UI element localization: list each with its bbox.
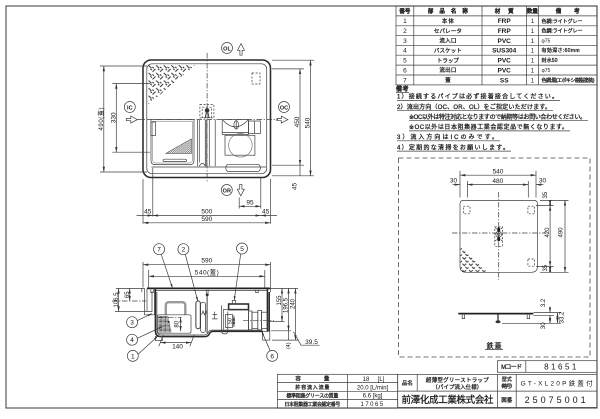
svg-text:45: 45 [144,209,152,216]
svg-text:図番: 図番 [501,397,512,404]
svg-text:PVC: PVC [498,38,512,45]
svg-text:5: 5 [403,58,407,65]
svg-text:トラップ: トラップ [437,57,459,64]
svg-text:240: 240 [291,298,297,309]
svg-text:OR: OR [223,188,231,194]
svg-text:色調:ライトグレー: 色調:ライトグレー [542,18,583,25]
svg-text:4）定期的な清掃をお願いします。: 4）定期的な清掃をお願いします。 [397,143,509,151]
svg-text:SS: SS [500,77,509,84]
svg-text:7: 7 [157,247,161,254]
svg-text:450: 450 [294,116,301,127]
svg-text:6.6 [kg]: 6.6 [kg] [363,394,383,400]
svg-text:品名: 品名 [402,379,413,387]
svg-text:φ75: φ75 [542,38,551,44]
svg-text:封水50: 封水50 [542,57,558,64]
svg-text:※OC以外は日本阻集器工業会認定品で無くなります。: ※OC以外は日本阻集器工業会認定品で無くなります。 [409,123,568,131]
svg-text:1: 1 [403,18,407,25]
svg-text:95: 95 [246,199,254,206]
svg-text:490: 490 [559,227,565,238]
svg-text:106.5: 106.5 [114,292,120,308]
svg-text:540(蓋): 540(蓋) [195,267,219,276]
svg-text:7: 7 [403,77,407,84]
svg-text:35: 35 [543,264,549,271]
svg-text:155: 155 [277,295,283,306]
svg-text:140: 140 [172,344,183,351]
svg-text:OL: OL [223,46,231,52]
svg-text:490(蓋): 490(蓋) [97,108,105,131]
svg-text:(4): (4) [286,342,292,349]
svg-text:Mコード: Mコード [501,364,522,371]
svg-text:番号: 番号 [398,7,410,15]
svg-text:35: 35 [543,191,549,198]
svg-text:色調:ライトグレー: 色調:ライトグレー [542,28,583,35]
svg-text:3: 3 [403,38,407,45]
svg-text:数量: 数量 [527,7,538,15]
svg-text:80: 80 [175,320,181,327]
svg-text:196.5: 196.5 [284,297,290,313]
svg-text:型式: 型式 [502,376,512,383]
svg-text:超薄型グリーストラップ: 超薄型グリーストラップ [426,376,489,384]
svg-text:540: 540 [493,168,504,175]
svg-text:φ75: φ75 [542,68,551,74]
svg-text:590: 590 [201,258,212,265]
svg-text:4: 4 [130,337,134,344]
svg-text:1）接続するパイプは必ず接着接合してください。: 1）接続するパイプは必ず接着接合してください。 [397,93,558,101]
svg-text:590: 590 [201,216,212,223]
svg-text:PVC: PVC [498,67,512,74]
svg-text:許容流入流量: 許容流入流量 [295,384,329,391]
svg-text:30: 30 [541,322,547,329]
svg-text:GT-XL20P鉄蓋付: GT-XL20P鉄蓋付 [521,378,594,387]
svg-text:420: 420 [545,227,551,238]
svg-text:蓋: 蓋 [445,76,451,84]
svg-text:18: 18 [363,377,370,383]
svg-text:65: 65 [125,291,131,298]
svg-text:3: 3 [130,320,134,327]
svg-text:本体: 本体 [442,17,454,25]
svg-text:バスケット: バスケット [434,47,462,54]
svg-text:30: 30 [539,178,547,185]
svg-text:81651: 81651 [544,362,579,371]
svg-text:45: 45 [262,209,270,216]
svg-text:備 考: 備 考 [556,7,580,15]
svg-text:33.2: 33.2 [559,311,565,323]
svg-text:30: 30 [450,178,458,185]
svg-text:流出口: 流出口 [439,66,456,74]
svg-text:FRP: FRP [498,18,512,25]
svg-text:有効深さ:60mm: 有効深さ:60mm [542,47,580,54]
svg-text:材 質: 材 質 [495,7,514,15]
svg-text:FRP: FRP [498,28,512,35]
svg-text:※OC以外は特注対応となりますので納期等はお問い合わせくださ: ※OC以外は特注対応となりますので納期等はお問い合わせください。 [409,113,586,121]
svg-text:4: 4 [403,48,407,55]
svg-text:備考: 備考 [396,85,409,93]
svg-text:[L]: [L] [378,377,385,383]
svg-text:流入口: 流入口 [439,37,456,45]
svg-text:PVC: PVC [498,58,512,65]
svg-text:（略号）: （略号） [498,383,515,390]
svg-text:500: 500 [201,208,212,215]
svg-text:色調:黒(エポキシ樹脂塗装): 色調:黒(エポキシ樹脂塗装) [542,77,595,84]
svg-text:標準阻集グリースの質量: 標準阻集グリースの質量 [286,393,338,400]
svg-text:1: 1 [131,353,135,360]
svg-text:3.2: 3.2 [541,298,547,307]
svg-text:20.0 [L/min]: 20.0 [L/min] [357,385,389,391]
svg-text:IC: IC [127,105,133,111]
svg-text:SUS304: SUS304 [492,48,517,55]
svg-text:39.5: 39.5 [305,339,318,346]
svg-text:前澤化成工業株式会社: 前澤化成工業株式会社 [402,394,494,406]
svg-text:540: 540 [305,117,312,128]
svg-text:17065: 17065 [361,402,385,408]
svg-text:330: 330 [111,112,118,123]
svg-text:日本阻集器工業会認定番号: 日本阻集器工業会認定番号 [284,401,340,408]
svg-text:5: 5 [240,246,244,253]
svg-text:45: 45 [291,183,298,191]
svg-text:25075001: 25075001 [525,395,589,405]
svg-text:50: 50 [228,318,234,324]
svg-text:OC: OC [280,105,288,111]
svg-text:（パイプ流入仕様）: （パイプ流入仕様） [432,383,482,391]
svg-text:6: 6 [270,353,274,360]
svg-text:2: 2 [403,28,407,35]
svg-text:2）流出方向（OC、OR、OL）をご指定いただけます。: 2）流出方向（OC、OR、OL）をご指定いただけます。 [397,103,551,111]
svg-text:鉄蓋: 鉄蓋 [487,341,502,350]
svg-text:セパレータ: セパレータ [434,27,462,35]
svg-text:6: 6 [403,67,407,74]
svg-text:2: 2 [182,247,186,254]
svg-text:480: 480 [492,178,503,185]
